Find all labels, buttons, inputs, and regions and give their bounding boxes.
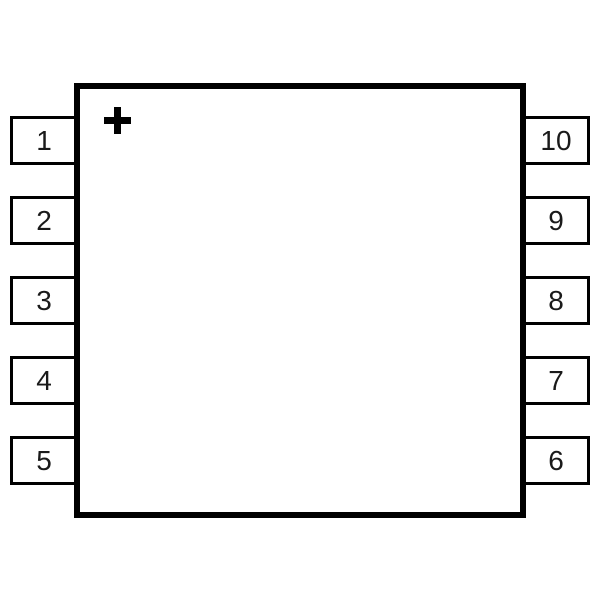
pin-10-label: 10	[540, 127, 571, 155]
pin-7-box: 7	[522, 356, 590, 405]
pin-5-label: 5	[36, 447, 52, 475]
pin-6-label: 6	[548, 447, 564, 475]
chip-body: +	[74, 83, 526, 518]
pin-8-box: 8	[522, 276, 590, 325]
pin-4-box: 4	[10, 356, 78, 405]
pin-1-label: 1	[36, 127, 52, 155]
pin-2-label: 2	[36, 207, 52, 235]
pin-6-box: 6	[522, 436, 590, 485]
pin-3-box: 3	[10, 276, 78, 325]
pin-8-label: 8	[548, 287, 564, 315]
pin-10-box: 10	[522, 116, 590, 165]
pin-3-label: 3	[36, 287, 52, 315]
pin-7-label: 7	[548, 367, 564, 395]
ic-package-pinout-diagram: 1 2 3 4 5 10 9 8 7 6 +	[0, 0, 600, 600]
pin-9-box: 9	[522, 196, 590, 245]
plus-icon: +	[104, 107, 131, 134]
pin-1-box: 1	[10, 116, 78, 165]
pin-5-box: 5	[10, 436, 78, 485]
pin-2-box: 2	[10, 196, 78, 245]
pin-4-label: 4	[36, 367, 52, 395]
pin-9-label: 9	[548, 207, 564, 235]
